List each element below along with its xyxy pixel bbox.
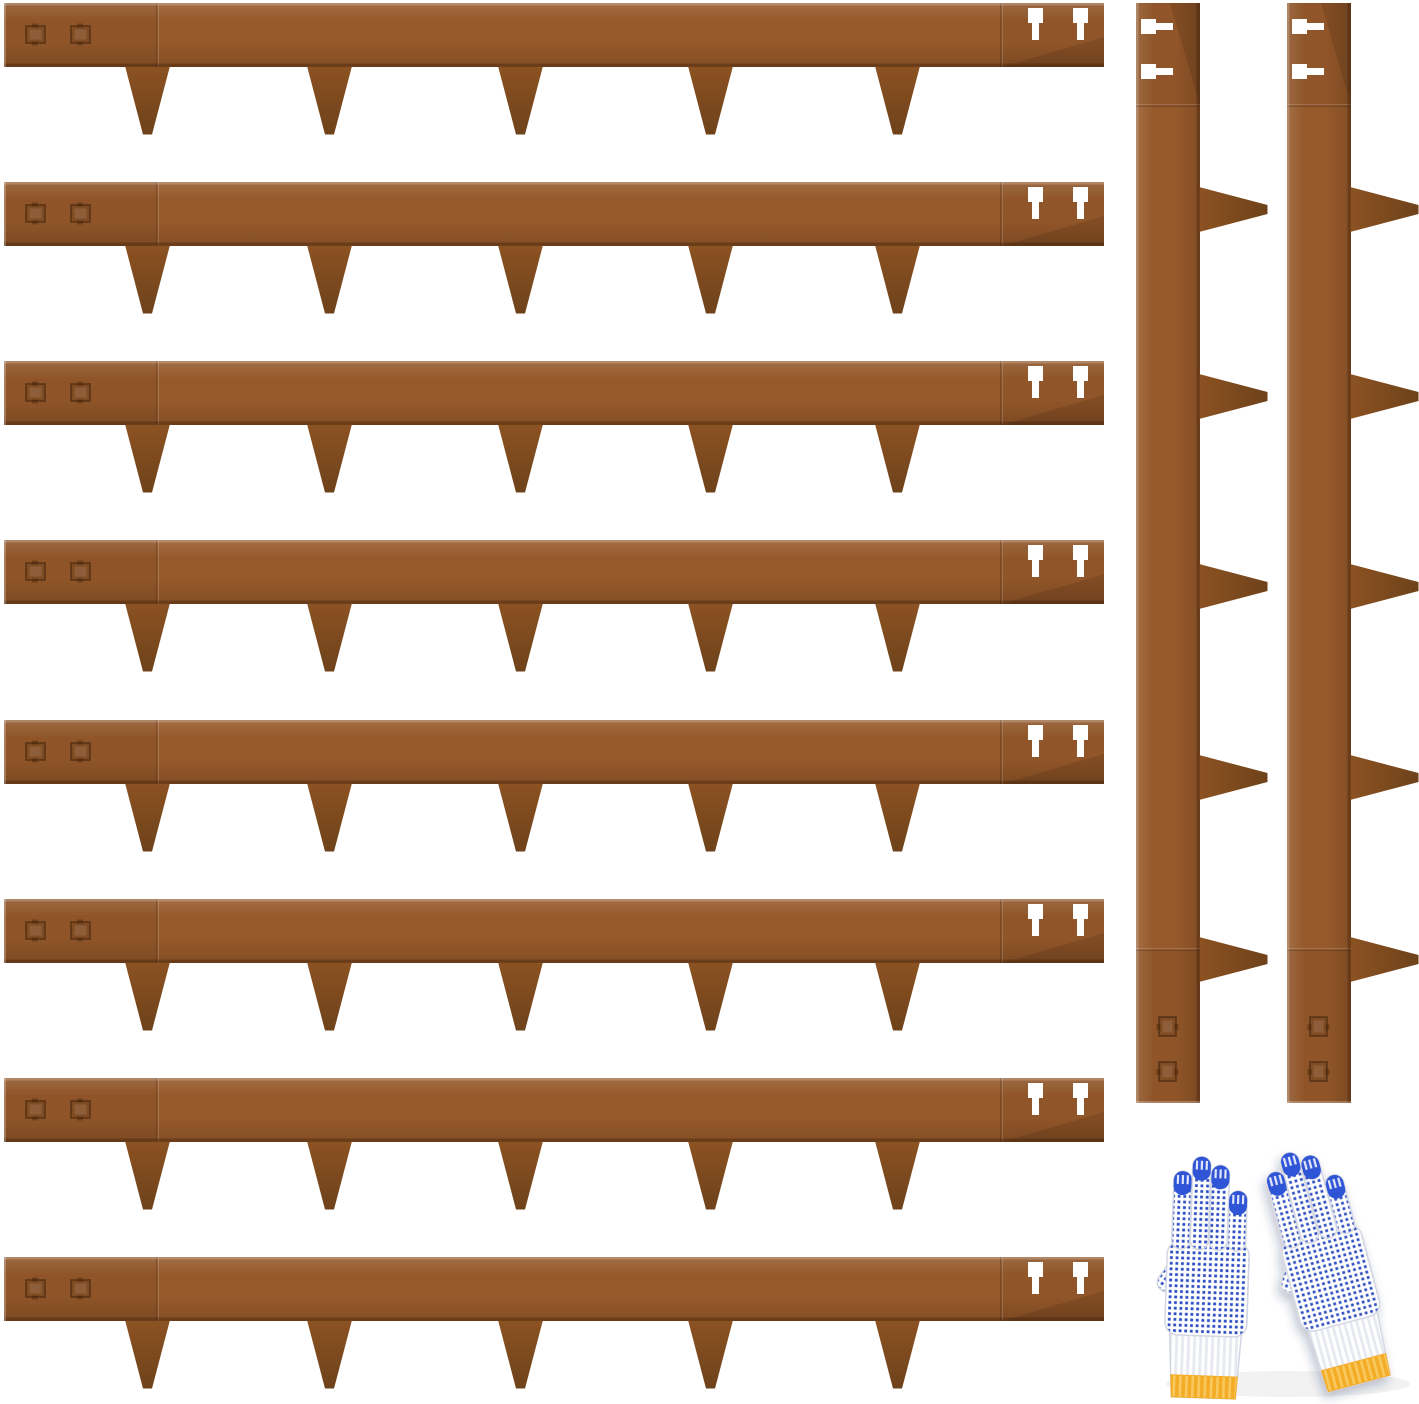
edging-strip-horizontal: [4, 361, 1104, 493]
edging-strip-vertical: [1136, 3, 1268, 1103]
edging-strip-horizontal: [4, 1257, 1104, 1389]
edging-strip-horizontal: [4, 1078, 1104, 1210]
edging-strip-horizontal: [4, 720, 1104, 852]
front-glove: [1245, 1140, 1399, 1397]
edging-strip-vertical: [1287, 3, 1419, 1103]
edging-strip-horizontal: [4, 3, 1104, 135]
edging-strip-horizontal: [4, 899, 1104, 1031]
back-glove: [1150, 1155, 1253, 1399]
work-gloves-pair: [1128, 1112, 1419, 1404]
edging-strip-horizontal: [4, 540, 1104, 672]
edging-strip-horizontal: [4, 182, 1104, 314]
product-photo: [0, 0, 1419, 1404]
